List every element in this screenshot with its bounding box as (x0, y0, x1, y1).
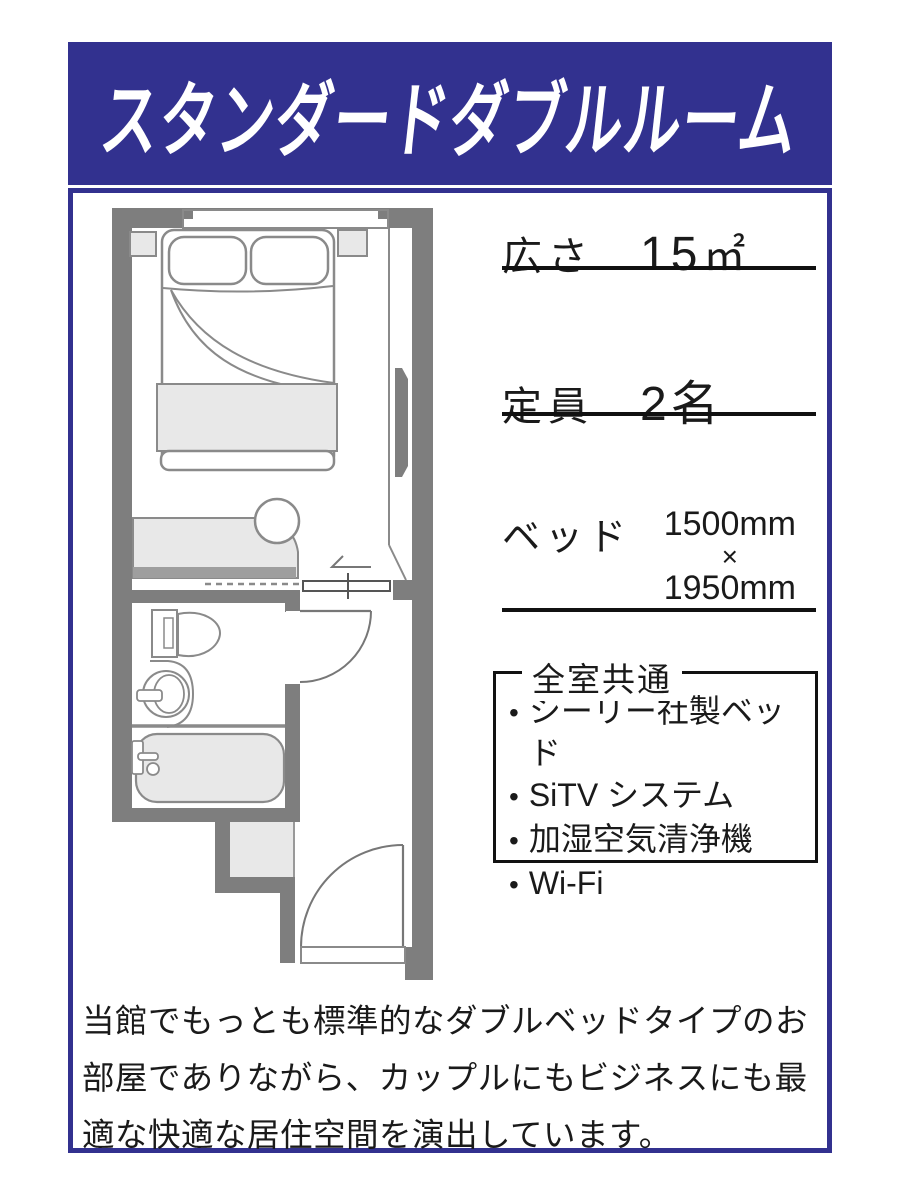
list-item: • SiTV システム (509, 774, 815, 818)
faucet (137, 690, 162, 701)
list-item: • Wi-Fi (509, 862, 815, 906)
room-description: 当館でもっとも標準的なダブルベッドタイプのお部屋でありながら、カップルにもビジネ… (82, 993, 822, 1164)
bullet-icon: • (509, 864, 519, 906)
divider-line (502, 608, 816, 612)
nightstand-left (130, 232, 156, 256)
bed-length: 1950mm (600, 570, 796, 607)
amenities-list: • シーリー社製ベッド • SiTV システム • 加湿空気清浄機 • Wi-F… (496, 674, 815, 906)
pillow-right (251, 237, 328, 284)
entrance-door (301, 845, 405, 963)
area-unit: ㎡ (703, 222, 745, 283)
list-item: • シーリー社製ベッド (509, 690, 815, 774)
bathtub (132, 734, 284, 802)
bullet-icon: • (509, 776, 519, 818)
spec-area: 広さ 15 ㎡ (502, 222, 745, 283)
footboard (161, 451, 334, 470)
floor-plan (105, 200, 440, 990)
amenities-title: 全室共通 (522, 653, 682, 701)
room-title-banner: スタンダードダブルルーム (68, 42, 832, 185)
washbasin (137, 661, 193, 727)
bullet-icon: • (509, 692, 519, 734)
divider-line (502, 266, 816, 270)
toilet (152, 610, 220, 657)
bullet-icon: • (509, 820, 519, 862)
room-info-page: スタンダードダブルルーム (0, 0, 900, 1200)
spec-capacity: 定員 2名 (502, 364, 723, 434)
window (183, 210, 388, 228)
closet (230, 822, 294, 877)
nightstand-right (338, 230, 367, 256)
blanket (157, 384, 337, 451)
amenity-label: シーリー社製ベッド (529, 690, 815, 774)
capacity-label: 定員 (502, 374, 594, 432)
multiply-sign: × (600, 543, 796, 570)
amenities-box: 全室共通 • シーリー社製ベッド • SiTV システム • 加湿空気清浄機 •… (493, 671, 818, 863)
area-label: 広さ (502, 224, 594, 282)
pillow-left (169, 237, 246, 284)
list-item: • 加湿空気清浄機 (509, 818, 815, 862)
amenity-label: Wi-Fi (529, 862, 604, 904)
amenity-label: SiTV システム (529, 774, 734, 816)
bed-size: 1500mm × 1950mm (600, 506, 796, 607)
wall-mirror-panel (389, 228, 408, 580)
stool (255, 499, 299, 543)
amenity-label: 加湿空気清浄機 (529, 818, 753, 860)
divider-line (502, 412, 816, 416)
page-title: スタンダードダブルルーム (96, 54, 805, 173)
double-bed (157, 230, 337, 470)
bathroom-door (286, 611, 371, 683)
capacity-value: 2名 (640, 364, 723, 434)
bed-width: 1500mm (600, 506, 796, 543)
swing-mark (332, 556, 371, 567)
area-value: 15 (640, 227, 701, 282)
